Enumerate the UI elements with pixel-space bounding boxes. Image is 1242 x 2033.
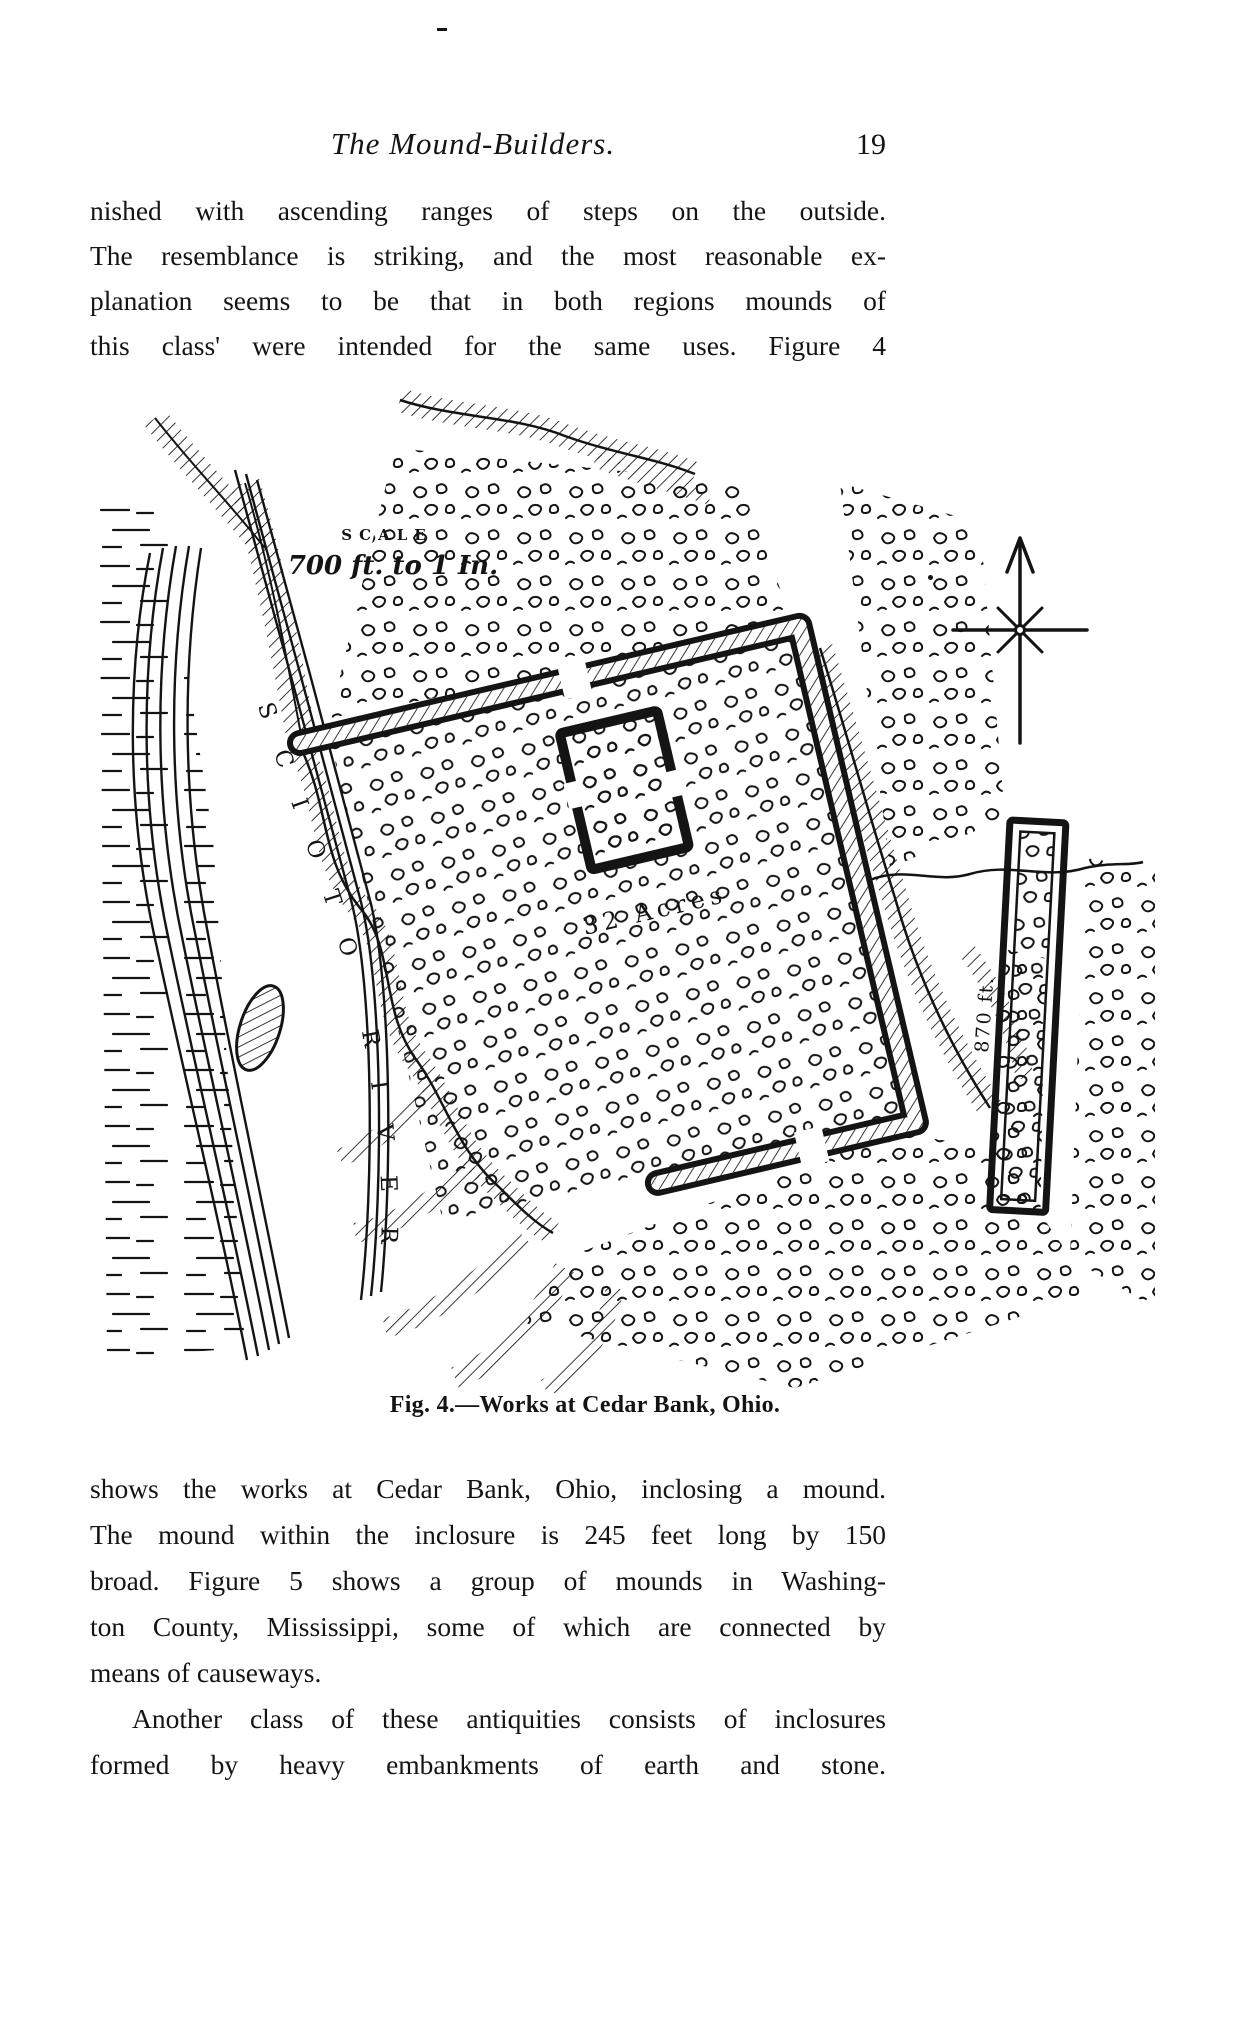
scale-heading: SCALE	[341, 526, 432, 544]
paragraph-top: nished with ascending ranges of steps on…	[90, 188, 886, 368]
body-line: means of causeways.	[90, 1650, 886, 1696]
bank-pond	[227, 980, 292, 1076]
figure-map-engraving: 32 Acres 870 ft. SCALE 700 ft. to 1 In. …	[95, 388, 1165, 1393]
body-line: The resemblance is striking, and the mos…	[90, 233, 886, 278]
body-line: ton County, Mississippi, some of which a…	[90, 1604, 886, 1650]
book-page: The Mound-Builders. 19 nished with ascen…	[0, 0, 1242, 2033]
body-line: formed by heavy embankments of earth and…	[90, 1742, 886, 1788]
scale-value: 700 ft. to 1 In.	[288, 551, 498, 581]
scan-artifact	[437, 28, 447, 31]
body-line: Another class of these antiquities consi…	[90, 1696, 886, 1742]
embankment-length-label: 870 ft.	[971, 975, 998, 1053]
body-line: shows the works at Cedar Bank, Ohio, inc…	[90, 1466, 886, 1512]
figure-caption: Fig. 4.—Works at Cedar Bank, Ohio.	[50, 1392, 1120, 1419]
marsh-flats	[99, 500, 245, 1358]
running-head-title: The Mound-Builders.	[90, 126, 856, 162]
paragraph-bottom: shows the works at Cedar Bank, Ohio, inc…	[90, 1466, 886, 1788]
body-line: The mound within the inclosure is 245 fe…	[90, 1512, 886, 1558]
body-line: planation seems to be that in both regio…	[90, 278, 886, 323]
body-line: this class' were intended for the same u…	[90, 323, 886, 368]
body-line: broad. Figure 5 shows a group of mounds …	[90, 1558, 886, 1604]
body-line: nished with ascending ranges of steps on…	[90, 188, 886, 233]
running-head: The Mound-Builders. 19	[90, 126, 886, 162]
page-number: 19	[856, 128, 886, 162]
